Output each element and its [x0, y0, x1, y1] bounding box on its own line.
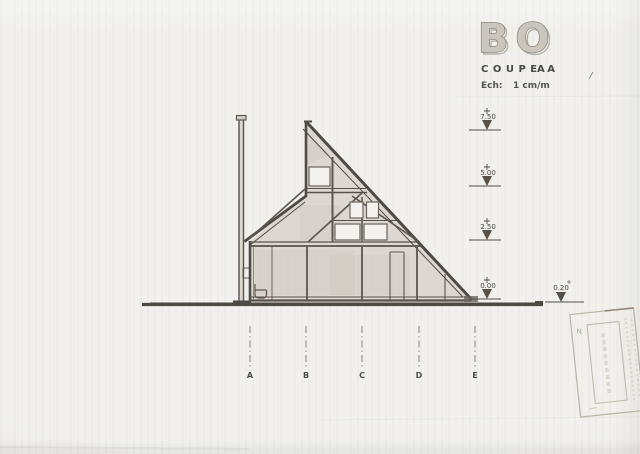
window-top [309, 167, 330, 186]
drawing-title: COUPE [481, 64, 542, 75]
office-stamp: N [570, 308, 640, 417]
column-grid: A B C D E [247, 326, 478, 380]
building-section [233, 116, 478, 303]
grid-label-a: A [247, 371, 254, 380]
section-drawing-canvas: BO BO COUPE AA Ech: 1 cm/m [0, 0, 640, 454]
drawing-section-ref: AA [537, 64, 557, 75]
elevation-marker-750: 7.50 [469, 108, 501, 130]
svg-text:0.20: 0.20 [553, 284, 569, 292]
elevation-marker-500: 5.00 [469, 164, 501, 186]
window-low-left [335, 224, 360, 240]
svg-text:2.50: 2.50 [480, 223, 496, 231]
window-mid-right [367, 202, 379, 218]
scanned-drawing-page: BO BO COUPE AA Ech: 1 cm/m [0, 0, 640, 454]
stamp-mark: N [576, 327, 582, 336]
elevation-markers: 7.50 5.00 2.50 0.00 0.20 [469, 108, 584, 302]
elevation-marker-020: 0.20 [545, 280, 584, 302]
grid-label-b: B [303, 371, 309, 380]
grid-label-e: E [472, 371, 477, 380]
pen-tick [589, 72, 593, 79]
scale-value: 1 cm/m [513, 81, 550, 91]
svg-text:0.00: 0.00 [480, 282, 496, 290]
title-block: BO BO COUPE AA Ech: 1 cm/m [478, 16, 593, 91]
scale-label: Ech: [481, 81, 503, 91]
chimney [233, 116, 251, 303]
svg-text:7.50: 7.50 [480, 113, 496, 121]
grid-label-d: D [416, 371, 423, 380]
ground-line [142, 303, 543, 305]
elevation-marker-250: 2.50 [469, 218, 501, 240]
logo: BO [478, 16, 557, 62]
window-low-right [364, 224, 387, 240]
elevation-marker-000: 0.00 [471, 277, 501, 299]
grid-label-c: C [359, 371, 365, 380]
svg-text:5.00: 5.00 [480, 169, 496, 177]
window-mid-left [350, 202, 363, 218]
